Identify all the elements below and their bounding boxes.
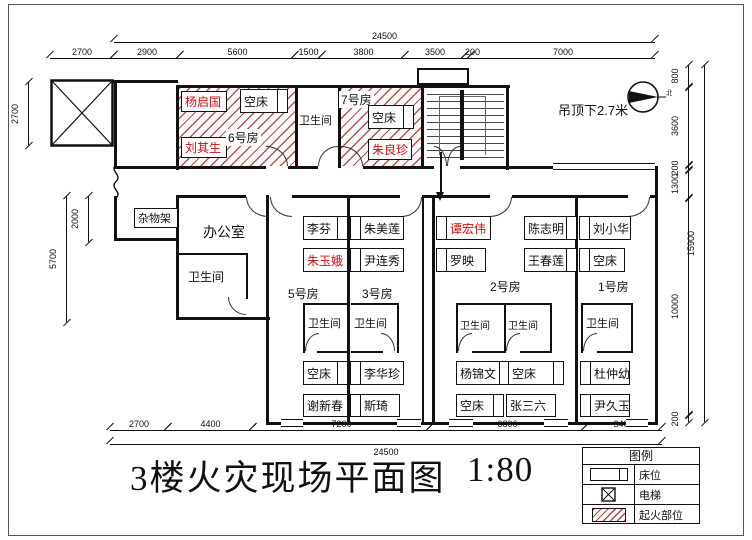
dim-bottom-7200: 7200: [253, 430, 430, 431]
window: [553, 163, 655, 170]
bed: 罗映: [436, 248, 486, 272]
wall: [303, 303, 349, 305]
stair-bulkhead: [417, 68, 469, 85]
bed: 陈志明: [524, 216, 577, 240]
wall: [176, 85, 179, 170]
legend-label: 起火部位: [635, 507, 699, 523]
room2-label: 2号房: [490, 278, 521, 295]
dim-left-2000: 2000: [88, 196, 89, 242]
wall: [351, 351, 383, 353]
wall: [292, 195, 400, 198]
dim-top-5600: 5600: [180, 58, 295, 59]
bed-symbol: [590, 468, 628, 481]
wall: [506, 85, 509, 170]
dim-right-200b: 200: [688, 415, 689, 422]
window: [544, 419, 568, 427]
bed: 空床: [303, 361, 348, 385]
bed: 杜仲幼: [580, 361, 630, 385]
window: [397, 419, 421, 427]
bed: 谭宏伟: [436, 216, 491, 240]
dim-right-800: 800: [688, 65, 689, 87]
wall: [460, 166, 553, 169]
dim-top-2900: 2900: [114, 58, 180, 59]
bathroom-label: 卫生间: [508, 317, 538, 332]
shelf-box: 杂物架: [134, 208, 178, 228]
bathroom-label: 卫生间: [354, 315, 387, 331]
bed: 杨启国: [181, 91, 227, 112]
exit-arrow: [440, 152, 442, 194]
wall: [176, 195, 246, 198]
room6-label: 6号房: [226, 129, 261, 146]
bed: 空床: [579, 248, 625, 272]
bed: 张三六: [506, 394, 556, 417]
legend: 图例 床位 电梯 起火部位: [582, 447, 700, 524]
wall: [550, 303, 552, 353]
wall: [176, 317, 270, 320]
fire-origin-symbol: [592, 508, 626, 522]
dim-top-3800: 3800: [322, 58, 405, 59]
bed: 空床: [508, 361, 564, 385]
elevator-symbol: [50, 79, 114, 147]
dim-right-1300: 1300: [688, 170, 689, 198]
bed: 朱美莲: [350, 216, 404, 240]
dim-top-7000: 7000: [471, 58, 655, 59]
bathroom-label: 卫生间: [188, 268, 224, 285]
dim-bottom-6800: 6800: [430, 430, 585, 431]
drawing-scale: 1:80: [467, 450, 533, 490]
window: [281, 419, 303, 427]
dim-top-3500: 3500: [405, 58, 465, 59]
office-label: 办公室: [203, 222, 245, 242]
svg-text:北: 北: [666, 89, 672, 97]
dim-top-2700: 2700: [50, 58, 114, 59]
stair-stringer: [460, 90, 464, 160]
wall: [472, 351, 504, 353]
bed: 李芬: [303, 216, 348, 240]
room3-label: 3号房: [362, 285, 393, 302]
dim-top-overall: 24500: [114, 42, 655, 43]
bed: 朱玉娥: [303, 248, 348, 272]
bed: 李华珍: [350, 361, 404, 385]
wall: [432, 195, 435, 425]
window: [626, 419, 648, 427]
wall: [288, 166, 318, 169]
drawing-title: 3楼火灾现场平面图: [130, 450, 446, 501]
room5-label: 5号房: [288, 285, 319, 302]
wall: [421, 87, 424, 168]
bathroom-label: 卫生间: [460, 317, 490, 332]
legend-row-fire-origin: 起火部位: [583, 505, 699, 524]
legend-title: 图例: [583, 448, 699, 465]
bed: 尹久玉: [580, 394, 630, 417]
bed: 刘小华: [579, 216, 631, 240]
dim-left-5700: 5700: [66, 196, 67, 322]
legend-row-elevator: 电梯: [583, 485, 699, 505]
wall: [520, 351, 552, 353]
wall: [176, 85, 510, 88]
dim-right-3600: 3600: [688, 87, 689, 165]
legend-label: 床位: [635, 467, 699, 483]
dim-bottom-overall: 24500: [110, 444, 662, 445]
dim-right-overall: 15900: [704, 65, 705, 422]
legend-row-bed: 床位: [583, 465, 699, 485]
wall: [631, 303, 633, 353]
wall: [178, 253, 248, 255]
wall: [655, 166, 658, 425]
bed: 刘其生: [181, 137, 227, 158]
wall: [397, 303, 399, 353]
bed: 王春莲: [524, 248, 577, 272]
wall: [266, 195, 269, 425]
wall: [112, 80, 178, 83]
bed: 谢新春: [303, 394, 348, 417]
legend-label: 电梯: [635, 487, 699, 503]
bed: 朱良珍: [368, 139, 412, 160]
room1-label: 1号房: [598, 278, 629, 295]
bed: 斯琦: [350, 394, 400, 417]
wall: [317, 351, 349, 353]
elevator-symbol: [601, 487, 616, 502]
exit-arrow-head: [436, 192, 444, 201]
dim-bottom-3400: 3400: [585, 430, 662, 431]
wall-break-symbol: [107, 165, 125, 198]
window: [449, 419, 473, 427]
wall: [114, 238, 177, 241]
floor-plan-canvas: 24500 2700 2900 5600 1500 3800 3500 200 …: [0, 0, 752, 540]
wall: [246, 253, 248, 299]
bathroom-label: 卫生间: [586, 315, 619, 331]
north-compass-icon: 北: [618, 76, 672, 120]
wall: [363, 166, 434, 169]
wall: [512, 195, 628, 198]
bathroom-label: 卫生间: [308, 315, 341, 331]
bed: 空床: [456, 394, 504, 417]
bed: 空床: [368, 105, 414, 129]
wall: [295, 87, 298, 168]
wall: [581, 303, 633, 305]
bed: 杨锦文: [456, 361, 510, 385]
wall: [351, 303, 399, 305]
wall: [422, 195, 424, 425]
wall: [114, 80, 117, 168]
bed: 尹连秀: [350, 248, 404, 272]
wall: [114, 196, 117, 240]
dim-left-2700: 2700: [28, 82, 29, 145]
dim-bottom-4400: 4400: [168, 430, 253, 431]
bed: 空床: [240, 89, 288, 113]
bathroom-label: 卫生间: [299, 112, 332, 128]
dim-bottom-2700: 2700: [110, 430, 168, 431]
wall: [597, 351, 633, 353]
wall: [114, 166, 266, 169]
